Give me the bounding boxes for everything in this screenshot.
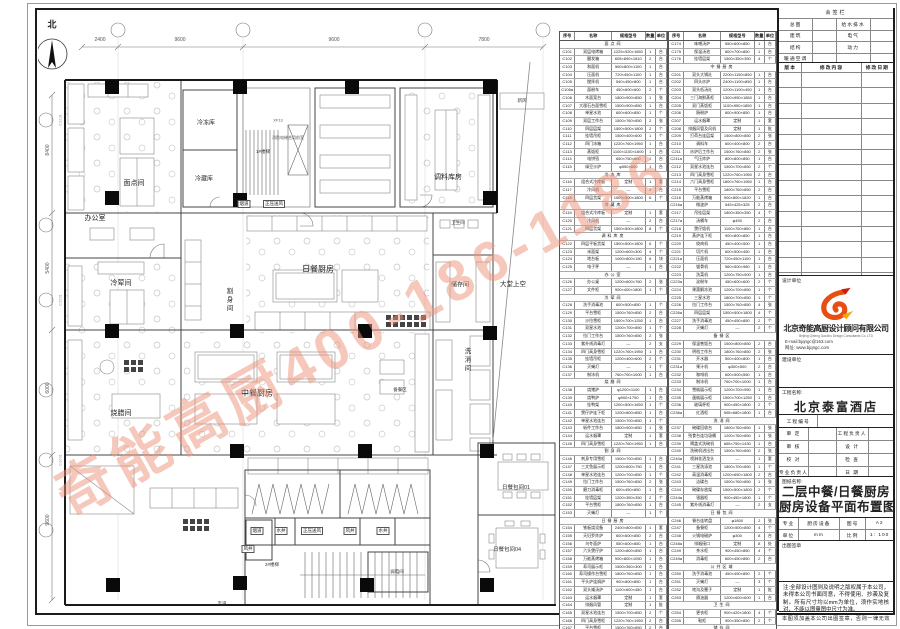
equipment-row: C236a红酒柜595×680×18001台: [669, 410, 776, 418]
label-fire-elevator-lobby: 消防电梯合用前室: [272, 135, 304, 141]
label-pressurized-air-top: 正压送风: [263, 200, 285, 208]
grid-row: 单位mm比例1: 100: [779, 530, 893, 541]
equipment-row: C213四门高身雪柜1220×760×19502台: [669, 172, 776, 180]
grid-row: [779, 242, 893, 257]
grid-row: 审 核设 计: [779, 441, 893, 454]
stamp-label: 出图签章: [779, 541, 893, 549]
equipment-row: C113蒸饭柜1100×1100×16001台: [560, 149, 667, 157]
grid-row: [779, 196, 893, 211]
equipment-row: C147三文鱼展示柜1200×600×7501台: [560, 464, 667, 472]
equipment-row: C227洗手消毒池450×450×8502个: [669, 318, 776, 326]
grid-row: [779, 181, 893, 196]
north-label: 北: [47, 18, 56, 31]
equipment-row: C165双星水池连台1500×700×8502个: [560, 610, 667, 618]
floor-plan-linework: [38, 8, 558, 614]
grid-row: 结构动力: [779, 42, 893, 54]
revision-section: 版本 修改内容 修改日期: [779, 63, 893, 276]
equipment-row: C118四层货架1500×500×18006个: [560, 195, 667, 203]
equipment-row: C217吊挂层架1800×350×3504个: [669, 210, 776, 218]
equipment-row: C237碗碟回收台1800×760×8501张: [669, 425, 776, 433]
equipment-row: C163运水烟罩定制1套: [560, 595, 667, 603]
equipment-row: C117冷风机—2台: [560, 187, 667, 195]
equipment-row: C112四门冰箱1220×760×19501台: [560, 141, 667, 149]
equipment-row: C153灭蝇灯—1个: [560, 510, 667, 518]
label-air-shaft-2: 风井: [242, 545, 255, 553]
grid-tag-1: C1231: [58, 114, 63, 126]
drawing-name-section: 图纸名称: 二层中餐/日餐厨房 厨房设备平面布置图: [779, 477, 893, 518]
grid-row: [779, 104, 893, 119]
label-water-shaft-2: 水井: [377, 527, 390, 535]
label-stair-2: 2#楼梯: [265, 562, 279, 568]
equipment-row: C120冷风机—2台: [560, 218, 667, 226]
meta-section: 专业厨房设备图号A2单位mm比例1: 100: [779, 518, 893, 541]
equipment-row: C255鞋柜900×350×8502个: [669, 618, 776, 626]
grid-row: 暖通空调: [779, 54, 893, 64]
equipment-row: C101双层电烤箱1225×920×16501台: [560, 49, 667, 57]
equipment-row: C130沙拉雪柜1500×700×12501台: [560, 318, 667, 326]
equipment-row: C202四头炒炉2400×1100×8501台: [669, 79, 776, 87]
drawing-title-line1: 二层中餐/日餐厨房: [779, 485, 893, 500]
equipment-row: C241三星洗涤池1800×700×8501个: [669, 464, 776, 472]
section-row: 洗消间: [669, 418, 776, 426]
equipment-row: C240洗碗机进出台1500×760×8502张: [669, 448, 776, 456]
equipment-row: C229保温售饭台1500×800×8502台: [669, 341, 776, 349]
project-no-section: 工程编号: [779, 415, 893, 428]
equipment-row: C248火锅电磁炉φ3008台: [669, 533, 776, 541]
signature-section: 会签栏 总图给水排水建筑电气结构动力暖通空调: [779, 8, 893, 63]
label-xf13: XF13: [273, 118, 283, 123]
equipment-row: C125电子秤—1台: [560, 264, 667, 272]
grid-row: 校 对检 查: [779, 454, 893, 467]
equipment-row: C161平头炉连焗炉900×800×8501台: [560, 579, 667, 587]
equipment-row: C234雪糕展示柜1200×700×9501台: [669, 387, 776, 395]
equipment-row: C230明档工作台1800×760×8502张: [669, 349, 776, 357]
room-label-freezer: 冷冻库: [197, 118, 215, 127]
company-logo: [779, 286, 893, 322]
equipment-row: C143斩件工作台1800×900×8501张: [560, 425, 667, 433]
room-label-japanese-kitchen: 日餐厨房: [302, 264, 334, 275]
equipment-row: C249茶水柜900×450×8504个: [669, 548, 776, 556]
equipment-row: C135挂墙吊柜1200×400×6002个: [560, 356, 667, 364]
equipment-row: C102醒发箱605×890×18102台: [560, 56, 667, 64]
grid-row: [779, 88, 893, 103]
equipment-row: C246餐台连转盘φ18002张: [669, 518, 776, 526]
equipment-row: C129平台雪柜1500×760×8502台: [560, 310, 667, 318]
equipment-row: C109双层工作台1500×760×8502张: [560, 118, 667, 126]
equipment-row: C132拉门工作台1500×760×8502张: [560, 333, 667, 341]
company-website: 网址: www.bjqngc.com: [779, 345, 893, 351]
equipment-row: C105搅拌机540×450×8001台: [560, 79, 667, 87]
equipment-row: C106木面案台1800×900×8501张: [560, 95, 667, 103]
section-row: 储存间: [669, 625, 776, 629]
room-label-sashimi-prep: 割身间: [223, 287, 233, 313]
equipment-row: C211a气压炸炉800×800×8501台: [669, 156, 776, 164]
equipment-row: C174味噌汤炉550×600×8501台: [669, 41, 776, 49]
room-label-serving-area: 备餐区: [393, 387, 407, 393]
equipment-table-1-header: 序号 名称 规格型号 数量 单位: [560, 32, 667, 41]
equipment-row: C248a排烟接口定制8处: [669, 541, 776, 549]
equipment-row: C233制冰机760×700×10001台: [669, 379, 776, 387]
equipment-row: C244碗碟存放架1500×500×18002个: [669, 487, 776, 495]
equipment-row: C204三门海鲜蒸柜1300×950×18501台: [669, 95, 776, 103]
equipment-row: C212双星水池连台1500×700×8502个: [669, 164, 776, 172]
equipment-row: C103和面机560×800×11001台: [560, 64, 667, 72]
equipment-row: C224果蔬解冻池1200×700×8501个: [669, 287, 776, 295]
equipment-row: C215平台雪柜1800×760×8502台: [669, 187, 776, 195]
section-row: 冷藏库: [560, 202, 667, 210]
equipment-row: C124地台板1000×800×1506块: [560, 256, 667, 264]
equipment-row: C144运水烟罩定制1套: [560, 433, 667, 441]
equipment-row: C116组合式冷库板定制1套: [560, 179, 667, 187]
equipment-row: C217a汤桶车φ4502台: [669, 218, 776, 226]
equipment-row: C107大理石台面雪柜1500×900×8501台: [560, 103, 667, 111]
equipment-row: C149拉门工作台1500×760×8502张: [560, 479, 667, 487]
design-unit-section: 设计单位 北京奇能高厨设计顾问有限公司 Beijing Qineng Gaoch…: [779, 276, 893, 355]
label-corridor: 走道: [218, 601, 227, 607]
equipment-row: C145四门高身雪柜1220×760×19501台: [560, 441, 667, 449]
equipment-row: C223a淀粉车450×600×6002个: [669, 279, 776, 287]
equipment-row: C141煲仔炉连下柜1200×800×8501台: [560, 410, 667, 418]
project-no-label: 工程编号: [779, 415, 818, 427]
equipment-row: C221a压面机720×450×11001台: [669, 256, 776, 264]
label-water-shaft-1: 水井: [275, 527, 288, 535]
equipment-row: C131双星水池1200×700×8501个: [560, 325, 667, 333]
equipment-row: C138烧猪炉φ1200×11001台: [560, 387, 667, 395]
equipment-row: C207运水烟罩定制1套: [669, 118, 776, 126]
section-row: 割身间: [560, 448, 667, 456]
equipment-row: C240a喷淋花洒龙头—1套: [669, 456, 776, 464]
equipment-row: C228灭蝇灯—2个: [669, 325, 776, 333]
equipment-row: C203双头低汤灶1200×1100×4501台: [669, 87, 776, 95]
equipment-row: C137制冰机760×700×10001台: [560, 372, 667, 380]
equipment-row: C104压面机720×450×11001台: [560, 72, 667, 80]
equipment-row: C140挂鸭架1200×500×16501个: [560, 402, 667, 410]
equipment-row: C156乌冬面炉550×600×8501台: [560, 541, 667, 549]
equipment-row: C219蒸炉连下柜900×800×8501台: [669, 233, 776, 241]
equipment-row: C236玻璃杯柜900×450×18002个: [669, 402, 776, 410]
equipment-row: C245紫外线消毒灯—2支: [669, 502, 776, 510]
equipment-row: C115绿豆沙炉φ550×8501台: [560, 164, 667, 172]
equipment-row: C150磨刀消毒柜600×450×8501台: [560, 487, 667, 495]
copyright-notes: 注:全部设计图则及说明之版权属于本公司，未得本公司书面同意，不得使用、抄袭及复制…: [779, 582, 893, 612]
section-row: 调料库房: [560, 233, 667, 241]
section-row: 冷冻库: [560, 172, 667, 180]
design-unit-label: 设计单位: [779, 276, 893, 284]
equipment-row: C154铁板烧设备2400×800×8501套: [560, 525, 667, 533]
room-label-pastry: 面点间: [124, 178, 145, 188]
equipment-row: C126办公桌1200×600×7602张: [560, 279, 667, 287]
grid-tag-3: C1631: [58, 454, 63, 466]
label-stair-1: 1#楼梯: [256, 149, 270, 155]
equipment-row: C252地沟及篦子定制1批: [669, 587, 776, 595]
equipment-table-2-header: 序号 名称 规格型号 数量 单位: [669, 32, 776, 41]
equipment-row: C226拉门工作台1500×760×8504张: [669, 302, 776, 310]
equipment-row: C160寿司操作台雪柜1800×760×8501台: [560, 571, 667, 579]
grid-row: [779, 135, 893, 150]
equipment-row: C127文件柜900×400×18001个: [560, 287, 667, 295]
grid-row: [779, 165, 893, 180]
grid-row: 专业负责人日 期: [779, 467, 893, 477]
equipment-row: C155天妇罗炸炉600×600×8502台: [560, 533, 667, 541]
room-label-private-room-01: 日餐包间01: [502, 483, 530, 491]
dim-top-1: 2400: [94, 37, 105, 43]
grid-row: 总图给水排水: [779, 19, 893, 31]
equipment-row: C249a消毒柜600×450×8502台: [669, 556, 776, 564]
drawing-title-line2: 厨房设备平面布置图: [779, 500, 893, 515]
section-row: 日餐厨房: [560, 518, 667, 526]
section-row: 烧腊间: [560, 379, 667, 387]
equipment-row: C142单星水池连台1500×700×8501个: [560, 418, 667, 426]
dim-left-2: 5400: [45, 262, 51, 273]
equipment-row: C247备餐柜1200×500×8504个: [669, 525, 776, 533]
room-label-cold-dish: 冷荤间: [111, 278, 132, 288]
equipment-row: C206肠粉炉800×900×8501台: [669, 110, 776, 118]
signature-title: 会签栏: [779, 8, 893, 19]
section-row: 日餐包间: [669, 510, 776, 518]
equipment-row: C105a面粉车450×600×6002个: [560, 87, 667, 95]
equipment-row: C111挂墙吊柜1500×400×6001个: [560, 133, 667, 141]
equipment-row: C238残食台连垃圾桶1200×760×8501张: [669, 433, 776, 441]
room-label-storage: 储存间: [451, 280, 469, 289]
label-low-voltage-room: 弱电间: [390, 569, 404, 575]
equipment-row: C216a微波炉545×425×3252台: [669, 202, 776, 210]
equipment-row: C225三星水池1800×700×8501个: [669, 295, 776, 303]
equipment-row: C159寿司展示柜1500×350×3001台: [560, 564, 667, 572]
equipment-row: C231a果汁机φ300×5002台: [669, 364, 776, 372]
equipment-row: C123米面架1200×600×3004个: [560, 249, 667, 257]
section-row: 冷荤间: [560, 295, 667, 303]
drawing-name-label: 图纸名称:: [779, 477, 893, 485]
grid-tag-2: C1531: [58, 294, 63, 306]
dim-top-2: 9600: [174, 37, 185, 43]
label-fresh-air: 新风: [518, 98, 527, 104]
project-name: 北京泰富酒店: [779, 398, 893, 415]
section-row: 中餐厨房: [669, 64, 776, 72]
grid-row: [779, 258, 893, 273]
label-flue: 烟道: [251, 527, 264, 535]
room-label-washing: 洗消间: [461, 347, 471, 373]
notes-section: 注:全部设计图则及说明之版权属于本公司，未得本公司书面同意，不得使用、抄袭及复制…: [779, 582, 893, 612]
equipment-row: C251灭蝇灯—3个: [669, 579, 776, 587]
equipment-row: C114电饼铛650×750×8001台: [560, 156, 667, 164]
label-pressurized-air: 正压送风: [301, 527, 323, 535]
validity-note: 本图须加盖本公司出图签章，否则一律无效: [779, 612, 893, 624]
equipment-row: C158万能蒸烤箱900×800×10501台: [560, 556, 667, 564]
equipment-row: C239揭盖式洗碗机665×750×14301台: [669, 441, 776, 449]
revision-header: 版本 修改内容 修改日期: [779, 63, 893, 73]
equipment-row: C148单星水池连台1200×700×8501个: [560, 472, 667, 480]
label-air-shaft-1: 风井: [344, 527, 357, 535]
equipment-row: C128洗手消毒池600×500×8501个: [560, 302, 667, 310]
equipment-row: C208排烟风管及风机定制1批: [669, 126, 776, 134]
room-label-toilet: 卫生间: [451, 220, 465, 226]
equipment-row: C139烧鸭炉φ900×17501台: [560, 395, 667, 403]
equipment-row: C244a银器柜900×450×18001个: [669, 495, 776, 503]
equipment-row: C209打荷台连层架1500×800×8502张: [669, 133, 776, 141]
dim-top-3: 9600: [328, 37, 339, 43]
equipment-row: C151挂墙层架1200×350×3502个: [560, 495, 667, 503]
equipment-table-2: 序号 名称 规格型号 数量 单位 C174味噌汤炉550×600×8501台C1…: [668, 31, 777, 629]
equipment-row: C146刺身专用雪柜1500×700×8501台: [560, 456, 667, 464]
room-label-private-room-04: 日餐包间04: [493, 545, 521, 553]
floor-plan: 北 面点间 冷冻库 冷藏库 1#楼梯 消防电梯合用前室 XF13 烟道 正压送风…: [38, 8, 558, 614]
approval-section: 审 定工程负责人审 核设 计校 对检 查专业负责人日 期: [779, 428, 893, 477]
equipment-row: C243洁碟台1500×760×8501张: [669, 479, 776, 487]
equipment-row: C226a四层层架1500×500×18004个: [669, 310, 776, 318]
equipment-row: C242高温消毒柜1200×650×18002台: [669, 472, 776, 480]
equipment-row: C157六头煲仔炉1200×800×8501台: [560, 548, 667, 556]
company-email: E-mail:bjqngc@163.com: [779, 339, 893, 344]
grid-row: 建筑电气: [779, 31, 893, 43]
equipment-row: C164排烟风管定制1批: [560, 602, 667, 610]
grid-row: [779, 73, 893, 88]
section-row: 面点间: [560, 41, 667, 49]
equipment-row: C231开水器500×400×8001台: [669, 356, 776, 364]
equipment-row: C216万能蒸烤箱900×800×18201台: [669, 195, 776, 203]
section-row: 办公室: [560, 272, 667, 280]
dim-left-3: 6000: [45, 382, 51, 393]
room-label-bbq: 烧腊间: [111, 408, 132, 418]
room-label-condiment-store: 调料库房: [434, 172, 462, 182]
grid-row: [779, 227, 893, 242]
equipment-row: C108单星水池600×600×8501个: [560, 110, 667, 118]
label-lobby-void: 大堂上空: [500, 278, 526, 288]
equipment-row: C110四层层架1500×500×18002个: [560, 126, 667, 134]
company-name-en: Beijing Qineng Gaochu Design Consultants…: [779, 334, 893, 338]
grid-row: 审 定工程负责人: [779, 428, 893, 441]
room-label-office: 办公室: [85, 213, 106, 223]
section-row: 卫生间: [669, 602, 776, 610]
equipment-row: C220绞肉机450×400×5001台: [669, 241, 776, 249]
stamp-section: 出图签章: [779, 541, 893, 582]
equipment-row: C162双头矮汤炉1100×600×4501台: [560, 587, 667, 595]
equipment-row: C119组合式冷库板定制1套: [560, 210, 667, 218]
dim-top-4: 7800: [478, 37, 489, 43]
equipment-row: C176挂墙层架1500×350×3504个: [669, 56, 776, 64]
grid-row: 专业厨房设备图号A2: [779, 518, 893, 530]
equipment-row: C250洗手消毒池450×450×8502个: [669, 571, 776, 579]
build-unit-section: 建设单位: [779, 355, 893, 388]
title-block: 会签栏 总图给水排水建筑电气结构动力暖通空调 版本 修改内容 修改日期 设计单位…: [777, 8, 893, 611]
room-label-cold-storage: 冷藏库: [195, 174, 213, 183]
equipment-row: C232咖啡机600×500×5501台: [669, 372, 776, 380]
label-flue-top: 烟道: [238, 200, 251, 208]
section-row: 备餐区: [669, 333, 776, 341]
equipment-row: C136灭蝇灯—1个: [560, 364, 667, 372]
equipment-row: C133紫外线消毒灯—2支: [560, 341, 667, 349]
grid-row: [779, 119, 893, 134]
drawing-sheet: 北 面点间 冷冻库 冷藏库 1#楼梯 消防电梯合用前室 XF13 烟道 正压送风…: [0, 0, 900, 629]
dim-left-4: 9600: [45, 514, 51, 525]
grid-row: [779, 150, 893, 165]
equipment-row: C211炒炉后工作台1500×760×8502张: [669, 149, 776, 157]
equipment-row: C254更衣柜900×420×18004个: [669, 610, 776, 618]
equipment-table-1: 序号 名称 规格型号 数量 单位 面点间C101双层电烤箱1225×920×16…: [559, 31, 668, 629]
grid-row: [779, 212, 893, 227]
equipment-row: C214六门高身雪柜1800×760×19501台: [669, 179, 776, 187]
equipment-row: C152平台雪柜1800×760×8501台: [560, 502, 667, 510]
section-row: 公共区域: [669, 564, 776, 572]
equipment-row: C167平台雪柜1500×760×8502台: [560, 625, 667, 629]
equipment-row: C210调料车600×400×8002台: [669, 141, 776, 149]
equipment-row: C175保温汤池800×700×8501台: [669, 49, 776, 57]
equipment-row: C253隔油器1200×600×6001台: [669, 595, 776, 603]
company-name-cn: 北京奇能高厨设计顾问有限公司: [779, 323, 893, 334]
equipment-row: C122四层平板货架1500×500×18006个: [560, 241, 667, 249]
equipment-row: C121四层货架1500×500×18008个: [560, 226, 667, 234]
project-name-label: 工程名称:: [779, 388, 893, 396]
equipment-row: C166四门高身雪柜1220×760×19502台: [560, 618, 667, 626]
equipment-row: C134四门高身雪柜1220×760×19501台: [560, 349, 667, 357]
equipment-row: C221切片机600×500×4501台: [669, 249, 776, 257]
north-arrow: [38, 39, 67, 69]
equipment-row: C201双头大锅灶2200×1150×8501台: [669, 72, 776, 80]
equipment-row: C235蛋糕展示柜1500×700×12501台: [669, 395, 776, 403]
equipment-row: C222锯骨机560×500×9801台: [669, 264, 776, 272]
room-label-chinese-kitchen: 中餐厨房: [241, 388, 273, 399]
build-unit-label: 建设单位: [779, 355, 893, 363]
equipment-row: C205双门蒸饭柜1100×950×18501台: [669, 103, 776, 111]
equipment-row: C218煲仔饭机1100×700×8501台: [669, 226, 776, 234]
dim-left-1: 8400: [45, 144, 51, 155]
equipment-row: C223洗菜机1200×750×9001台: [669, 272, 776, 280]
project-name-section: 工程名称: 北京泰富酒店: [779, 388, 893, 415]
